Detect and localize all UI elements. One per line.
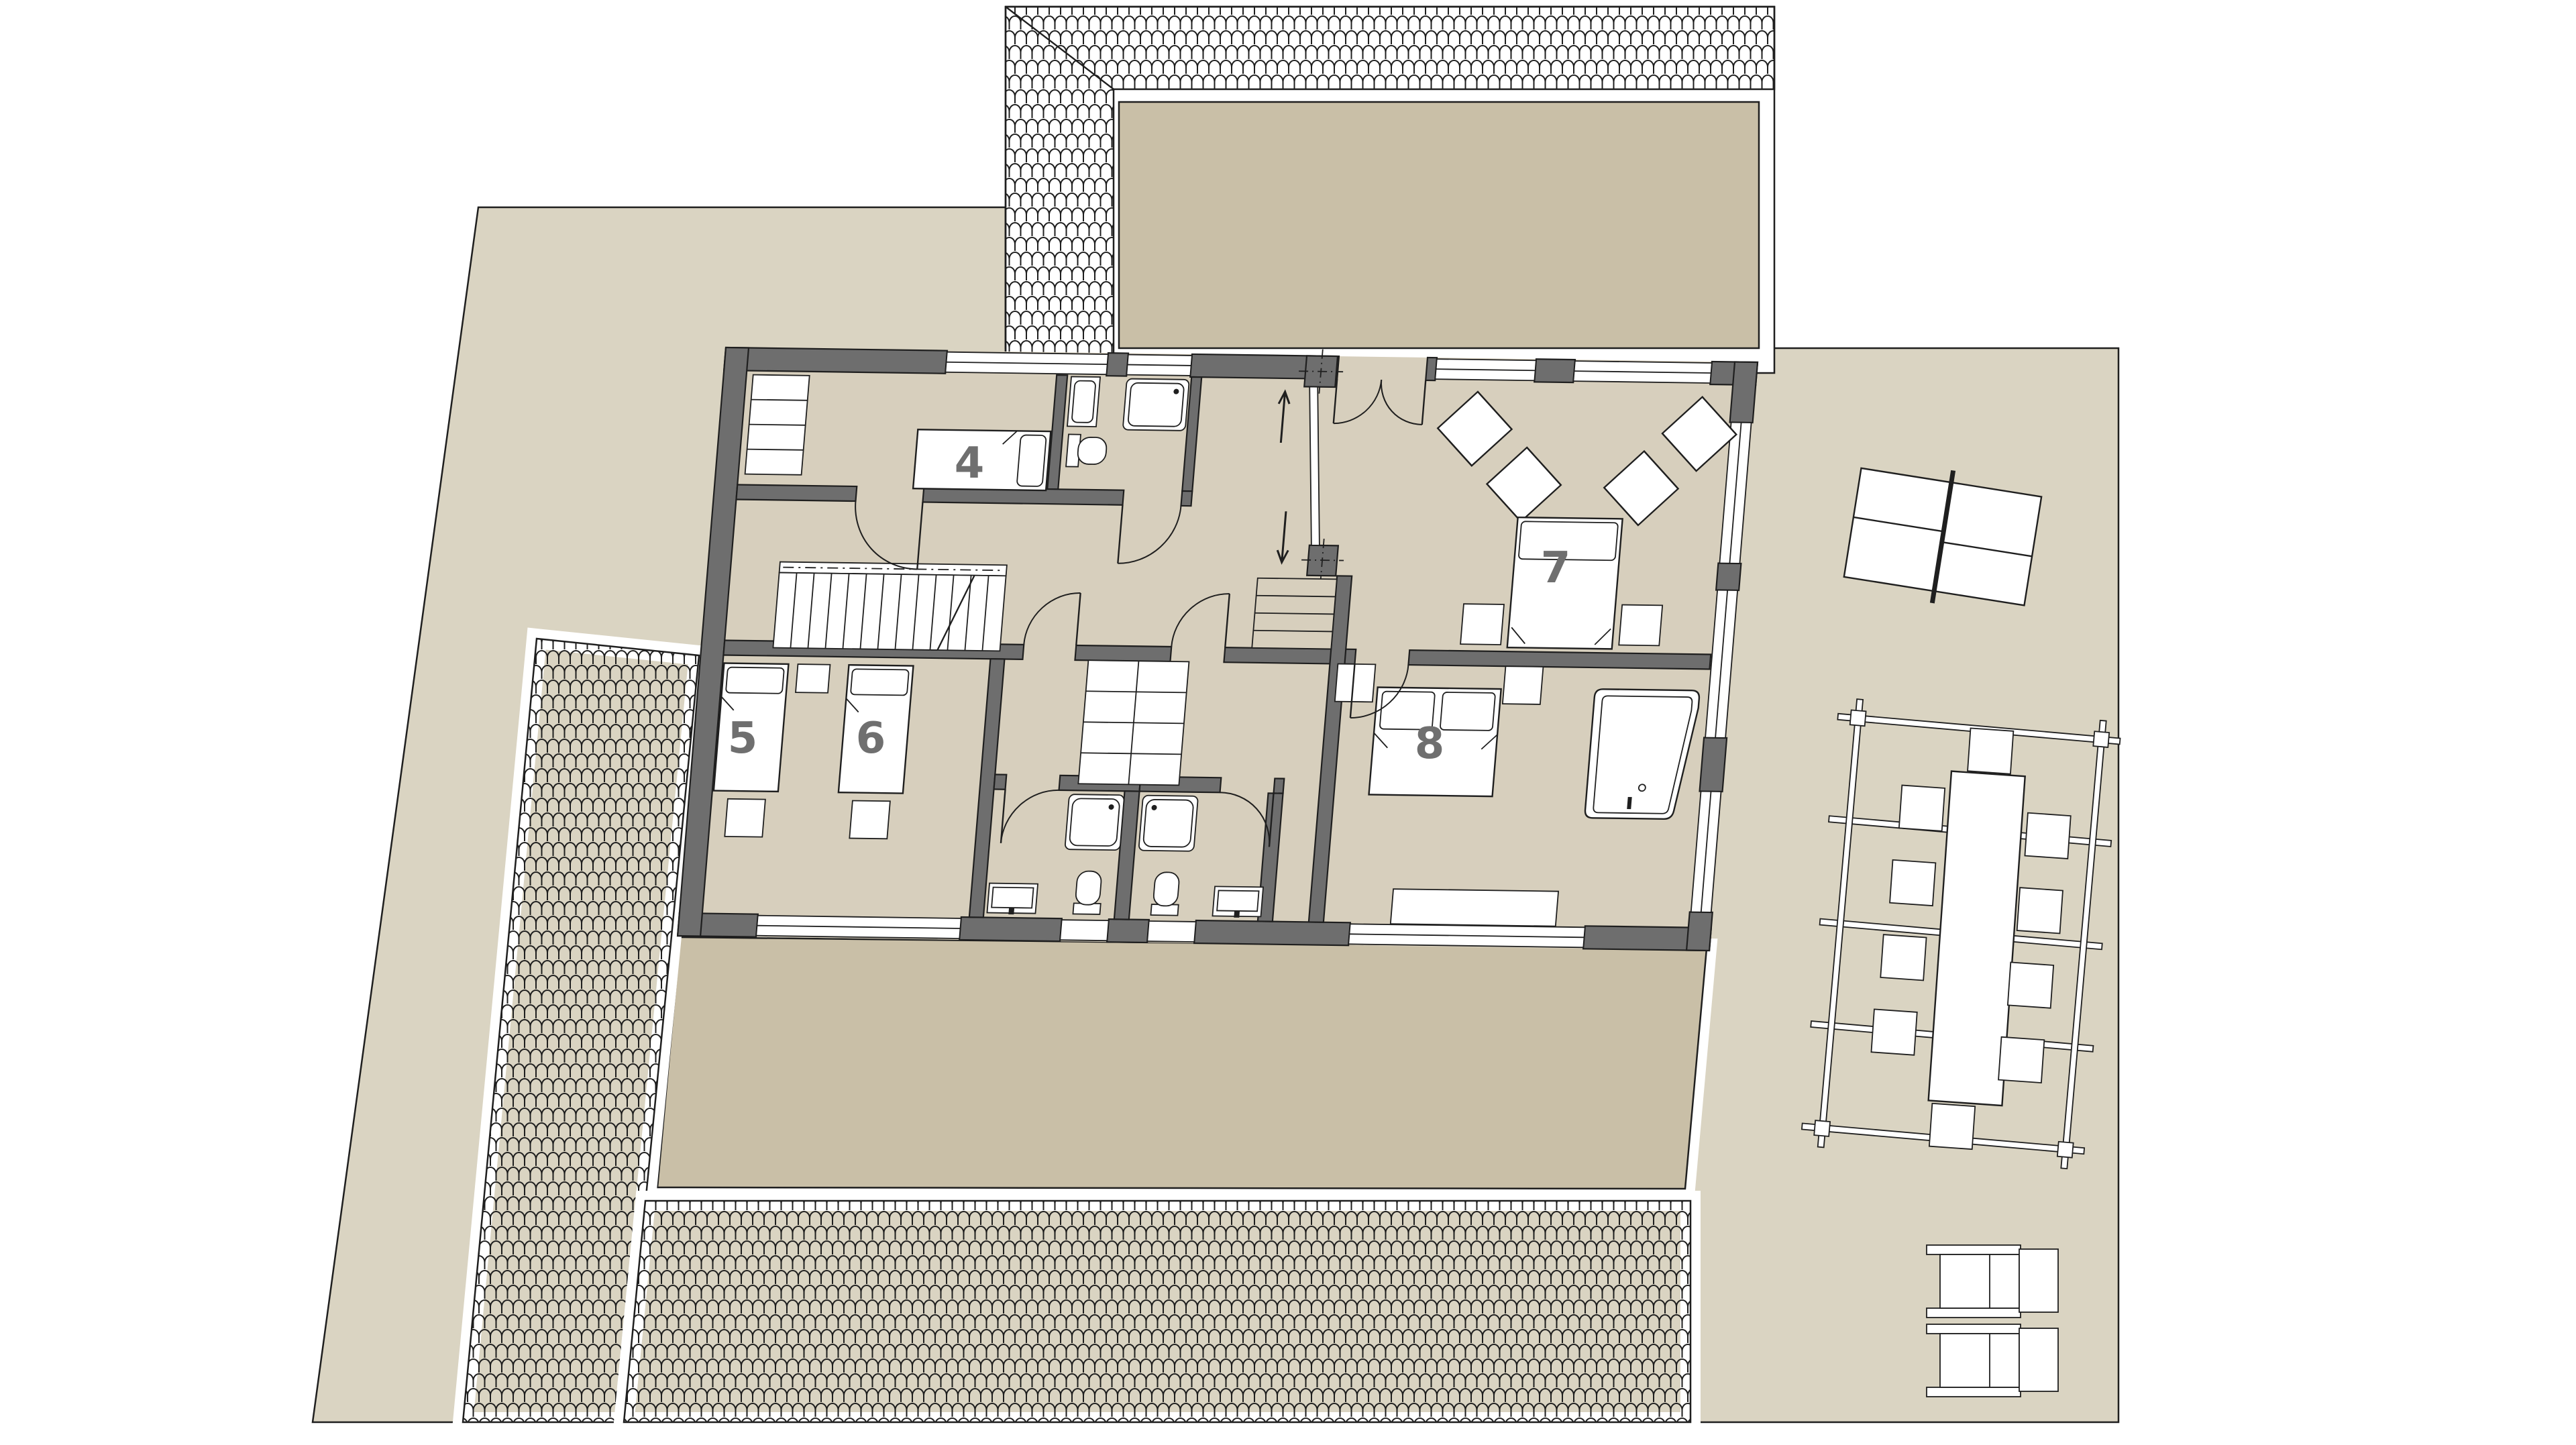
nightstand [849, 800, 890, 839]
floor-plan-drawing: 4 5 6 7 8 [0, 0, 2576, 1445]
window [1060, 920, 1108, 941]
nightstand [724, 799, 765, 837]
pillow [1017, 435, 1046, 486]
sun-lounger [1927, 1245, 2058, 1318]
wall-room4-south [736, 484, 857, 501]
window [1126, 355, 1191, 376]
main-staircase [773, 562, 1006, 651]
window [1435, 359, 1536, 380]
sun-lounger [1927, 1324, 2058, 1397]
window [1573, 361, 1711, 383]
wall-bath-north [994, 774, 1007, 789]
hall-closets [1078, 660, 1189, 785]
wall-mid [1075, 645, 1171, 661]
sink [1212, 886, 1263, 918]
room-5-label: 5 [728, 714, 758, 763]
house [678, 341, 1758, 951]
wall-bath-north [1274, 778, 1285, 793]
room-6-label: 6 [856, 714, 886, 763]
pillow [726, 667, 784, 694]
nightstand [1503, 666, 1544, 704]
small-stair-flight [1252, 578, 1337, 649]
window [1348, 924, 1585, 947]
shower [1065, 794, 1124, 850]
room-7-label: 7 [1541, 543, 1571, 593]
bottom-roof-tiles [624, 1201, 1690, 1422]
upper-terrace [1119, 102, 1759, 348]
nightstand [1460, 604, 1504, 645]
stair-treads [773, 573, 1006, 651]
lower-terrace [657, 937, 1707, 1189]
toilet [1066, 434, 1108, 467]
upper-roof-block [1006, 7, 1774, 373]
window [1147, 921, 1195, 942]
room-4-label: 4 [955, 439, 985, 488]
wardrobe [745, 375, 810, 475]
shower [1138, 796, 1198, 851]
floor-plan-canvas: 4 5 6 7 8 [0, 0, 2576, 1445]
nightstand [1335, 664, 1376, 702]
pillow [851, 669, 909, 695]
shower [1123, 379, 1189, 431]
window-bench [1391, 889, 1558, 926]
bedside-table [796, 664, 830, 693]
toilet [1150, 872, 1181, 916]
window [756, 916, 961, 939]
wall-room4-south [1181, 491, 1192, 506]
pillow [1440, 692, 1496, 731]
nightstand [1619, 605, 1662, 646]
toilet [1073, 871, 1103, 914]
room-8-label: 8 [1415, 719, 1445, 769]
sink [987, 884, 1038, 915]
window [945, 352, 1108, 374]
